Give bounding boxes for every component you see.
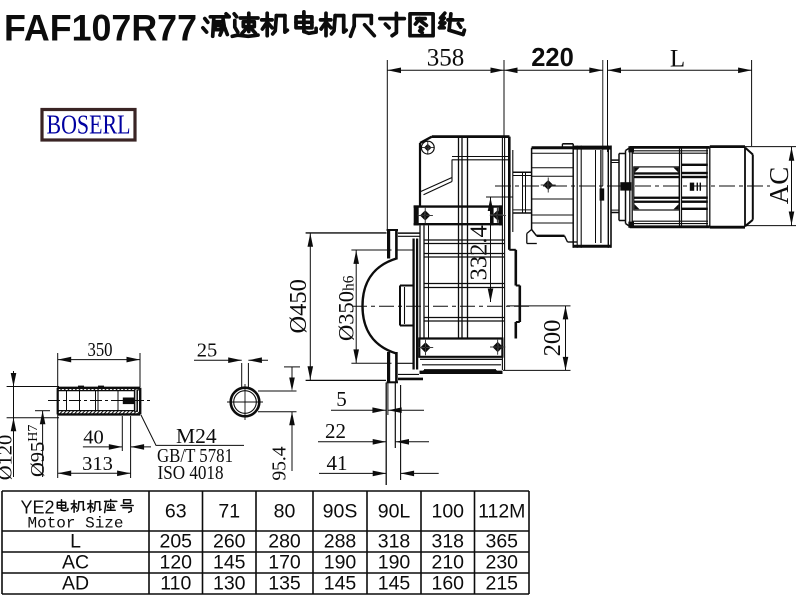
svg-text:215: 215: [485, 573, 518, 595]
svg-text:63: 63: [165, 501, 187, 523]
svg-text:145: 145: [324, 573, 357, 595]
svg-text:220: 220: [531, 44, 574, 72]
svg-text:41: 41: [327, 451, 348, 475]
svg-text:200: 200: [539, 320, 566, 357]
svg-text:170: 170: [268, 552, 301, 574]
svg-text:145: 145: [378, 573, 411, 595]
svg-text:350: 350: [88, 339, 113, 361]
svg-text:25: 25: [197, 339, 218, 361]
svg-text:AD: AD: [62, 573, 89, 595]
svg-text:120: 120: [159, 552, 192, 574]
svg-text:365: 365: [485, 531, 518, 553]
svg-text:FAF107R77: FAF107R77: [4, 7, 197, 49]
svg-text:M24: M24: [176, 424, 217, 448]
svg-text:280: 280: [268, 531, 301, 553]
svg-text:318: 318: [378, 531, 411, 553]
svg-text:95.4: 95.4: [270, 446, 291, 480]
svg-text:100: 100: [431, 501, 464, 523]
svg-text:210: 210: [431, 552, 464, 574]
svg-text:288: 288: [324, 531, 357, 553]
svg-text:318: 318: [431, 531, 464, 553]
svg-text:71: 71: [218, 501, 240, 523]
svg-text:L: L: [670, 46, 685, 73]
svg-text:90L: 90L: [378, 501, 411, 523]
svg-text:BOSERL: BOSERL: [47, 110, 131, 140]
svg-text:358: 358: [427, 45, 465, 72]
svg-text:205: 205: [159, 531, 192, 553]
svg-text:313: 313: [82, 453, 113, 475]
svg-text:40: 40: [83, 427, 104, 449]
svg-text:130: 130: [213, 573, 246, 595]
svg-text:135: 135: [268, 573, 301, 595]
svg-text:Ø120: Ø120: [0, 435, 17, 481]
svg-text:332.4: 332.4: [466, 225, 493, 280]
svg-text:190: 190: [324, 552, 357, 574]
svg-text:80: 80: [274, 501, 296, 523]
svg-text:ISO 4018: ISO 4018: [158, 463, 224, 484]
svg-text:AC: AC: [62, 552, 89, 574]
svg-text:22: 22: [325, 419, 346, 443]
svg-text:110: 110: [160, 573, 191, 595]
svg-text:260: 260: [213, 531, 246, 553]
svg-text:L: L: [70, 531, 81, 553]
svg-text:190: 190: [378, 552, 411, 574]
svg-text:160: 160: [431, 573, 464, 595]
svg-text:90S: 90S: [323, 501, 358, 523]
svg-text:5: 5: [336, 387, 347, 411]
svg-text:145: 145: [213, 552, 246, 574]
svg-text:Ø450: Ø450: [285, 279, 312, 333]
svg-text:112M: 112M: [478, 501, 525, 523]
svg-text:230: 230: [485, 552, 518, 574]
svg-text:AC: AC: [764, 167, 794, 205]
